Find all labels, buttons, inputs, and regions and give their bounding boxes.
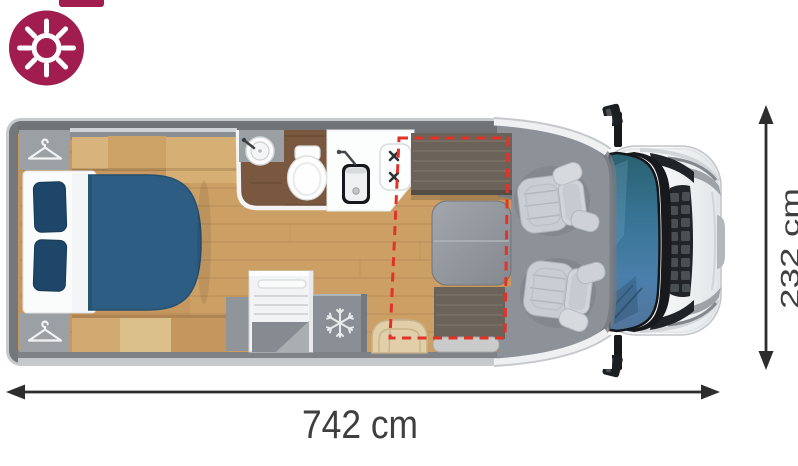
svg-text:742 cm: 742 cm: [302, 403, 418, 447]
svg-text:232 cm: 232 cm: [775, 188, 798, 309]
